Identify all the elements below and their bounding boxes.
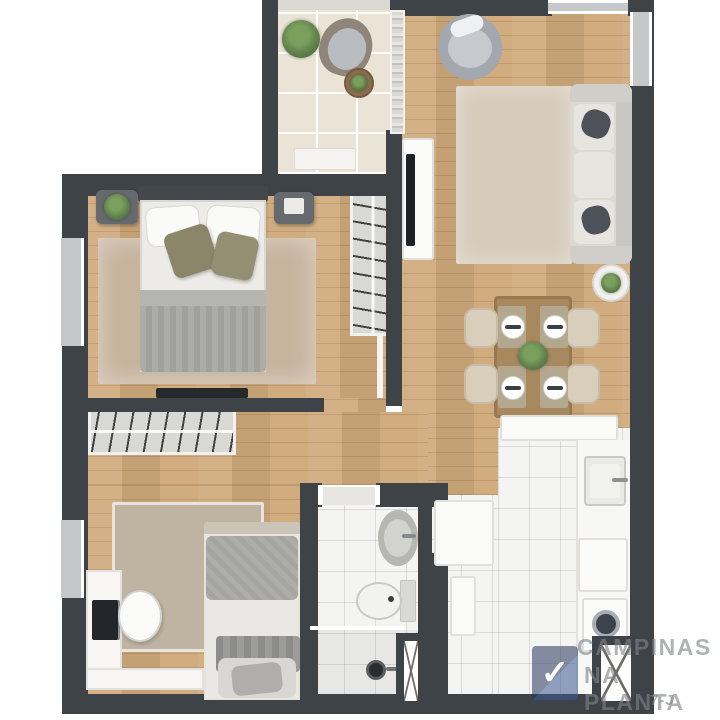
wall-right <box>630 4 654 714</box>
side-table-plant <box>601 273 621 293</box>
wall-living-bedroom-divider <box>386 178 402 406</box>
wall-balcony-left <box>262 0 278 180</box>
desk-horizontal <box>86 668 204 690</box>
coffee-table-plant <box>351 75 367 91</box>
desk-monitor-icon <box>92 600 118 640</box>
wall-bathroom-left <box>300 483 318 712</box>
stove <box>578 538 628 592</box>
watermark-registration: 7-J <box>650 692 675 709</box>
master-bedroom-window <box>58 238 84 346</box>
wall-balcony-door-jamb <box>386 130 402 182</box>
refrigerator <box>434 500 494 566</box>
bathroom-door-jamb-left <box>318 485 323 505</box>
plate-4 <box>543 376 567 400</box>
bedroom2-pillow <box>231 661 284 696</box>
master-duvet-fold <box>140 290 266 306</box>
nightstand-plant <box>104 194 130 220</box>
shower-glass-partition <box>310 626 405 630</box>
balcony-railing <box>274 0 394 10</box>
bedroom2-window <box>58 520 84 598</box>
kitchen-faucet-icon <box>612 478 628 482</box>
plate-1 <box>501 315 525 339</box>
living-room-right-window <box>630 12 652 86</box>
shower-drain-icon <box>366 660 386 680</box>
wall-kitchen-left <box>430 553 448 694</box>
master-accent-cushion-2 <box>210 230 260 282</box>
living-tv-icon <box>406 154 415 246</box>
bathroom-sink-basin <box>384 519 412 557</box>
living-room-top-window <box>548 0 628 14</box>
kitchen-base-cabinet <box>450 576 476 636</box>
plate-2 <box>543 315 567 339</box>
watermark-brand-line1: CAMPINAS <box>577 634 712 661</box>
hallway-closet-hangers <box>88 408 236 455</box>
nightstand-book <box>284 198 304 214</box>
bedroom2-duvet-gray <box>206 536 298 600</box>
wall-master-bottom <box>62 398 324 412</box>
bathroom-faucet-icon <box>402 534 416 538</box>
kitchen-top-cabinet <box>500 415 618 441</box>
desk-chair <box>118 590 162 642</box>
balcony-bench <box>294 148 356 170</box>
dining-chair-3 <box>566 308 600 348</box>
sofa-armrest-bottom <box>570 246 632 264</box>
toilet-flush-icon <box>388 596 394 602</box>
dining-chair-4 <box>566 364 600 404</box>
dining-centerpiece-plant <box>518 342 548 370</box>
living-room-rug <box>456 86 572 264</box>
sofa-backrest <box>616 84 632 264</box>
plate-3 <box>501 376 525 400</box>
sofa-armrest-top <box>570 84 632 102</box>
balcony-plant <box>282 20 320 58</box>
balcony-sliding-door <box>390 10 405 134</box>
campinas-na-planta-logo-icon: ✓ <box>532 646 578 700</box>
bathroom-door-threshold <box>322 487 376 505</box>
bathroom-door-jamb-right <box>375 485 380 505</box>
toilet-tank <box>400 580 416 622</box>
master-bedroom-door-leaf <box>377 336 383 398</box>
sofa-cushion-2 <box>574 152 614 198</box>
toilet-bowl <box>356 582 402 620</box>
bathroom-service-duct <box>396 633 426 709</box>
floor-plan: ✓ CAMPINAS NA PLANTA 7-J <box>0 0 720 720</box>
dining-chair-2 <box>464 364 498 404</box>
dining-chair-1 <box>464 308 498 348</box>
master-wall-tv-icon <box>156 388 248 398</box>
